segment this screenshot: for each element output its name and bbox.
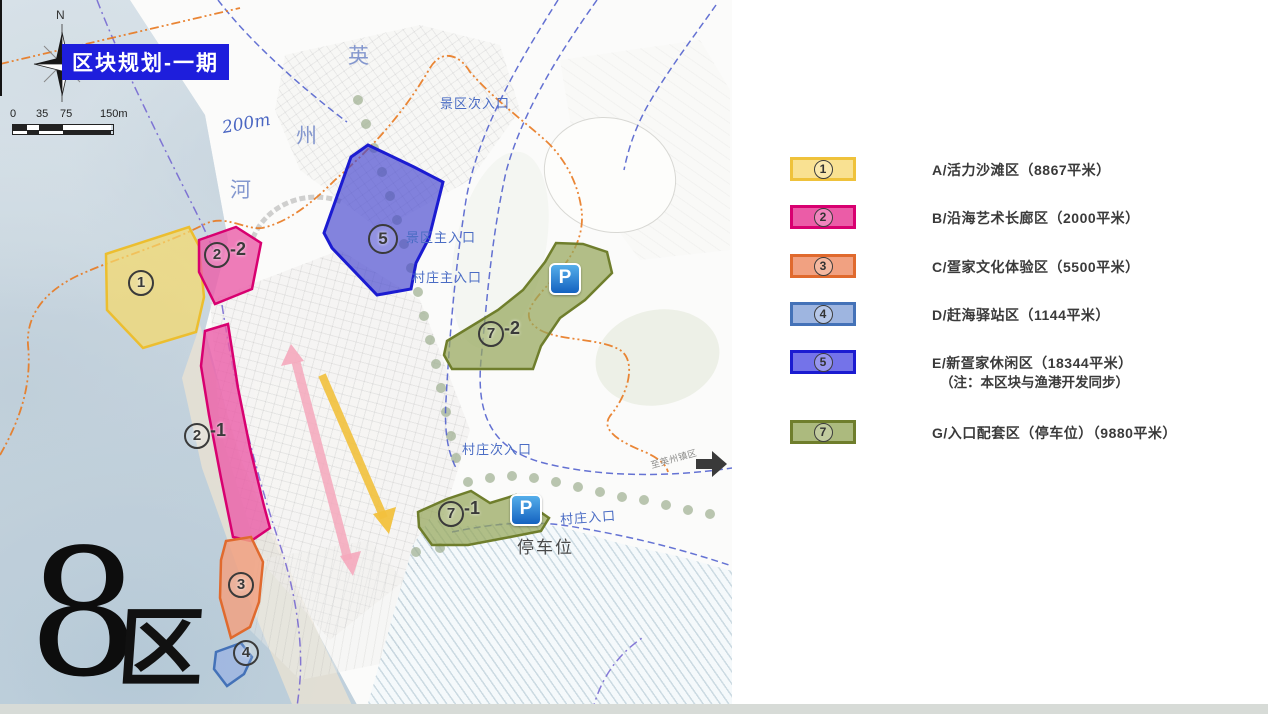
dashed-line-topright: [624, 5, 716, 170]
circled-number: 3: [228, 572, 254, 598]
zone-label-3: 3: [228, 569, 254, 598]
bottom-strip: [0, 704, 1268, 714]
zone-label-1: 1: [128, 267, 154, 296]
circled-number: 7: [478, 321, 504, 347]
legend-swatch: 2: [790, 205, 856, 229]
parking-label: 停车位: [517, 533, 574, 558]
slide: N 0 35 75 150m 区块规划-一期 英 州 河 200m 景区次入口 …: [0, 0, 1268, 714]
circled-number: 2: [184, 423, 210, 449]
river-label-char: 州: [296, 120, 317, 150]
legend-label: D/赶海驿站区（1144平米）: [932, 305, 1110, 325]
entrance-label-scenic-secondary: 景区次入口: [440, 93, 510, 112]
dashed-line-road-east: [480, 0, 732, 474]
legend-panel: 1 A/活力沙滩区（8867平米） 2 B/沿海艺术长廊区（2000平米） 3 …: [732, 0, 1268, 714]
legend-note: （注：本区块与渔港开发同步）: [940, 371, 1129, 391]
legend-circled-number: 7: [814, 423, 833, 442]
legend-swatch: 3: [790, 254, 856, 278]
entrance-label-village-main: 村庄主入口: [412, 267, 482, 286]
legend-circled-number: 1: [814, 160, 833, 179]
river-label-char: 河: [230, 174, 251, 204]
parking-icon: P: [549, 263, 581, 295]
district-suffix-char: 区: [115, 606, 207, 692]
legend-label: B/沿海艺术长廊区（2000平米）: [932, 208, 1140, 228]
legend-label: C/疍家文化体验区（5500平米）: [932, 257, 1140, 277]
river-label-char: 英: [348, 40, 369, 70]
legend-label: A/活力沙滩区（8867平米）: [932, 160, 1111, 180]
circled-number: 4: [233, 640, 259, 666]
scale-bar-strip: [12, 124, 114, 131]
north-label: N: [56, 8, 65, 22]
scale-tick: 35: [36, 108, 48, 120]
to-town-arrow-icon: [696, 451, 727, 477]
page-title: 区块规划-一期: [62, 44, 229, 80]
scale-tick: 150m: [100, 108, 128, 120]
dashed-line-topleft: [218, 0, 347, 122]
legend-label: E/新疍家休闲区（18344平米）: [932, 353, 1133, 373]
entrance-label-village-secondary: 村庄次入口: [462, 439, 532, 458]
scale-bar-strip-2: [12, 131, 114, 135]
zone-polygon-1-beach: [106, 227, 204, 348]
zone-label-2-2: 2-2: [204, 239, 246, 268]
circled-number: 7: [438, 501, 464, 527]
legend-circled-number: 3: [814, 257, 833, 276]
zone-label-4: 4: [233, 637, 259, 666]
zone-label-2-1: 2-1: [184, 420, 226, 449]
zone-label-7-2: 7-2: [478, 318, 520, 347]
legend-label: G/入口配套区（停车位）（9880平米）: [932, 423, 1177, 443]
scale-tick: 0: [10, 108, 16, 120]
zone-label-7-1: 7-1: [438, 498, 480, 527]
legend-swatch: 5: [790, 350, 856, 374]
scale-tick: 75: [60, 108, 72, 120]
legend-swatch: 1: [790, 157, 856, 181]
legend-swatch: 4: [790, 302, 856, 326]
circled-number: 1: [128, 270, 154, 296]
entrance-label-scenic-main: 景区主入口: [406, 227, 476, 246]
left-edge-mark: [0, 0, 2, 96]
legend-circled-number: 5: [814, 353, 833, 372]
legend-swatch: 7: [790, 420, 856, 444]
zone-label-5: 5: [368, 224, 398, 254]
parking-icon: P: [510, 494, 542, 526]
zone-polygon-7-2-parking: [444, 243, 612, 369]
entrance-label-village: 村庄入口: [559, 505, 616, 528]
circled-number: 5: [368, 224, 398, 254]
circled-number: 2: [204, 242, 230, 268]
legend-circled-number: 4: [814, 305, 833, 324]
legend-circled-number: 2: [814, 208, 833, 227]
site-plan-map: N 0 35 75 150m 区块规划-一期 英 州 河 200m 景区次入口 …: [0, 0, 732, 714]
